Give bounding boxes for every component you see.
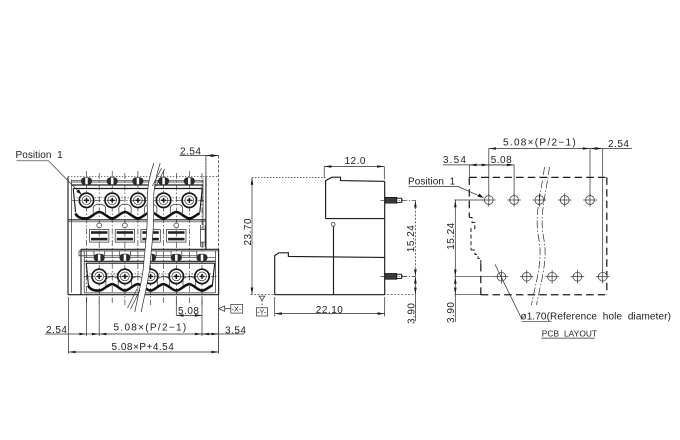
svg-text:2.54: 2.54 (46, 325, 67, 336)
svg-text:5.08×(P/2−1): 5.08×(P/2−1) (503, 138, 577, 149)
svg-text:15.24: 15.24 (406, 225, 417, 253)
svg-text:12.0: 12.0 (345, 156, 366, 167)
svg-text:-Y-: -Y- (257, 308, 267, 317)
svg-text:PCB LAYOUT: PCB LAYOUT (542, 329, 597, 339)
svg-text:15.24: 15.24 (446, 222, 457, 250)
svg-text:-X-: -X- (232, 305, 242, 314)
svg-text:5.08×P+4.54: 5.08×P+4.54 (112, 342, 175, 353)
svg-text:Position 1: Position 1 (16, 150, 64, 161)
svg-text:5.08×(P/2−1): 5.08×(P/2−1) (114, 323, 188, 334)
svg-text:22.10: 22.10 (316, 305, 344, 316)
svg-text:5.08: 5.08 (491, 155, 512, 166)
svg-text:3.90: 3.90 (407, 303, 418, 324)
svg-text:ø1.70(Reference hole diamete: ø1.70(Reference hole diameter) (521, 312, 672, 323)
svg-text:Position 1: Position 1 (408, 176, 456, 187)
svg-text:23.70: 23.70 (243, 218, 254, 246)
svg-text:3.90: 3.90 (446, 302, 457, 323)
svg-text:3.54: 3.54 (225, 325, 246, 336)
